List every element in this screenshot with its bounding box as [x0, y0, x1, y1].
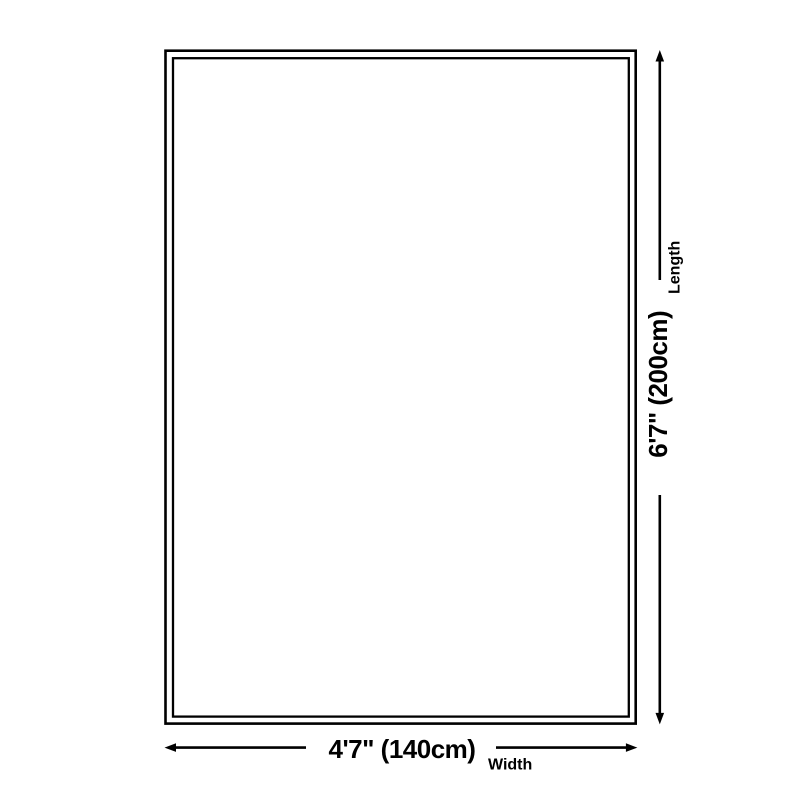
svg-text:Length: Length — [667, 241, 684, 294]
svg-text:4'7" (140cm): 4'7" (140cm) — [329, 734, 476, 764]
svg-text:6'7" (200cm): 6'7" (200cm) — [643, 311, 673, 458]
svg-text:Width: Width — [488, 756, 532, 773]
